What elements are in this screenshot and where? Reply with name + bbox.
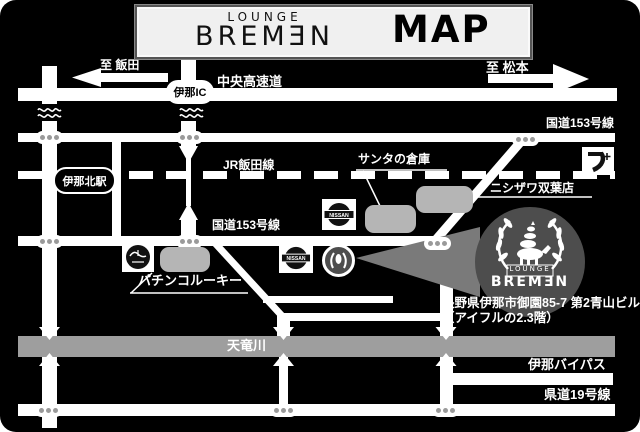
road-local-connector <box>278 313 452 321</box>
logo-bremen-text: BREMƎN <box>475 274 585 290</box>
nishizawa-mark-box <box>582 147 614 175</box>
tenryu-river-band <box>18 336 615 357</box>
inakita-station-capsule: 伊那北駅 <box>53 167 116 194</box>
calligraphy-stamp-icon <box>122 242 154 272</box>
road-mid-vertical-upper <box>277 313 290 336</box>
label-pachinko-rookie: パチンコルーキー <box>138 274 242 288</box>
pachinko-rookie-building <box>160 247 210 272</box>
road-mid-vertical-lower <box>279 357 288 404</box>
bremen-marker-wreath <box>325 247 352 274</box>
label-route19: 県道19号線 <box>544 388 610 402</box>
road-east-vertical-lower <box>440 357 453 404</box>
traffic-signal-icon <box>512 133 539 146</box>
road-route153-lower <box>18 236 470 246</box>
label-expressway: 中央高速道 <box>217 75 282 89</box>
nissan-logo-icon: NISSAN <box>279 243 313 273</box>
label-nishizawa: ニシザワ双葉店 <box>490 182 574 195</box>
road-ina-bypass <box>444 373 613 385</box>
nissan-dealer-box: NISSAN <box>279 243 313 273</box>
title-bremen: BREMƎN <box>137 21 392 52</box>
label-to-matsumoto: 至 松本 <box>486 61 529 75</box>
label-santa-warehouse: サンタの倉庫 <box>358 153 430 166</box>
nissan-dealer-box: NISSAN <box>322 199 356 230</box>
label-route153-mid: 国道153号線 <box>212 219 280 232</box>
traffic-signal-icon <box>35 404 62 417</box>
logo-lounge-text: LOUNGE <box>475 265 585 273</box>
road-route19 <box>18 404 615 416</box>
road-ina-ic-overpass <box>186 152 191 206</box>
label-to-iida: 至 飯田 <box>100 59 139 72</box>
ina-ic-capsule: 伊那IC <box>166 80 214 104</box>
traffic-signal-icon <box>176 131 203 144</box>
road-local-spur <box>263 296 393 303</box>
road-chuo-expressway <box>18 88 617 101</box>
traffic-signal-icon <box>270 404 297 417</box>
nishizawa-building <box>416 186 473 213</box>
label-tenryu-river: 天竜川 <box>227 339 266 353</box>
santa-warehouse-building <box>365 205 416 233</box>
calligraphy-stamp-box <box>122 242 154 272</box>
road-station-vertical <box>112 136 121 246</box>
traffic-signal-icon <box>36 131 63 144</box>
svg-text:NISSAN: NISSAN <box>287 256 306 262</box>
traffic-signal-icon <box>424 237 451 250</box>
map-title-box: LOUNGE BREMƎN MAP <box>135 5 532 59</box>
road-west-vertical-lower <box>42 357 57 428</box>
label-jr-line: JR飯田線 <box>223 159 274 172</box>
label-address-line2: （アイフルの2.3階） <box>442 312 559 326</box>
bremen-access-map: NISSAN NISSAN 伊那北駅 伊那IC <box>0 0 640 432</box>
svg-text:NISSAN: NISSAN <box>329 213 349 219</box>
title-map: MAP <box>392 8 491 51</box>
traffic-signal-icon <box>432 404 459 417</box>
label-ina-bypass: 伊那バイパス <box>528 358 606 372</box>
traffic-signal-icon <box>36 235 63 248</box>
nissan-logo-icon: NISSAN <box>322 199 356 230</box>
label-route153-ne: 国道153号線 <box>546 117 614 130</box>
bremen-marker-icon <box>322 244 355 277</box>
road-west-vertical-upper <box>42 66 57 336</box>
label-address-line1: 長野県伊那市御園85-7 第2青山ビル <box>442 297 640 311</box>
nishizawa-mark-icon <box>582 147 614 175</box>
